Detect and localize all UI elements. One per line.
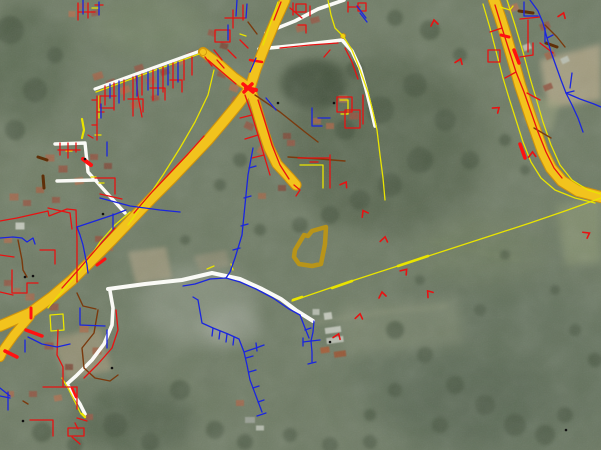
aerial-map-canvas[interactable]	[0, 0, 601, 450]
map-viewport[interactable]	[0, 0, 601, 450]
